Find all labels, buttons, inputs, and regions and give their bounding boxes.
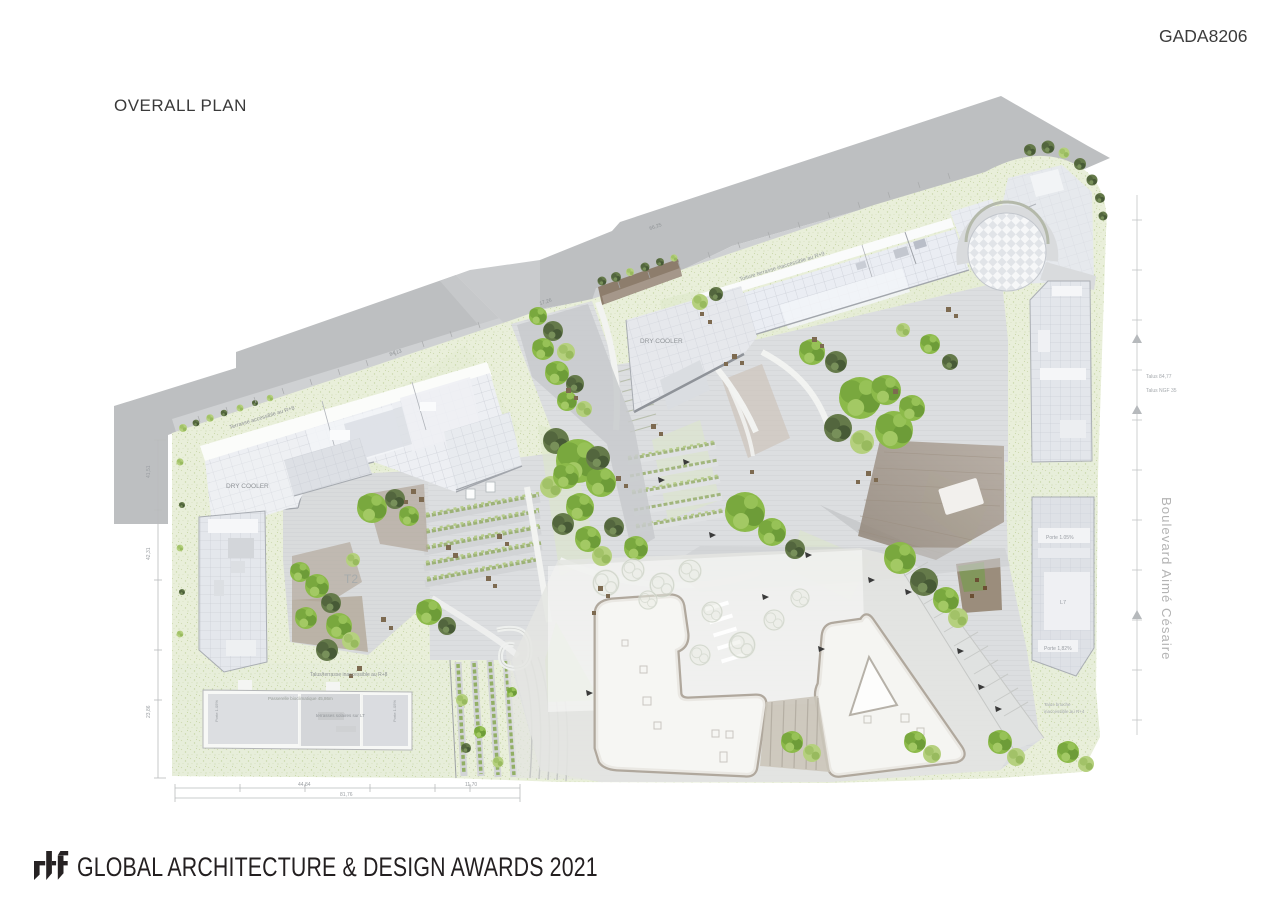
svg-text:T2: T2: [344, 572, 358, 586]
svg-text:81,76: 81,76: [340, 792, 353, 798]
svg-text:Talus NGF 35: Talus NGF 35: [1146, 388, 1177, 394]
svg-text:Porte 1,82%: Porte 1,82%: [1044, 646, 1072, 652]
svg-text:Porte 1.05%: Porte 1.05%: [392, 700, 397, 722]
svg-text:Talus 84,77: Talus 84,77: [1146, 374, 1172, 380]
svg-text:DRY COOLER: DRY COOLER: [640, 338, 683, 345]
svg-text:Talus brioche: Talus brioche: [1044, 702, 1071, 707]
svg-text:Passerelle bioclimatique 45,86: Passerelle bioclimatique 45,86m: [268, 696, 333, 701]
svg-text:42,31: 42,31: [146, 547, 152, 560]
svg-text:DRY COOLER: DRY COOLER: [226, 483, 269, 490]
svg-text:Porte 1.05%: Porte 1.05%: [1046, 535, 1074, 541]
svg-text:L7: L7: [1060, 600, 1066, 606]
svg-text:44,84: 44,84: [298, 782, 311, 788]
svg-text:Talus/terrasse inaccessible au: Talus/terrasse inaccessible au R+8: [310, 672, 388, 678]
svg-text:23,86: 23,86: [146, 705, 152, 718]
svg-text:Porte 1.05%: Porte 1.05%: [214, 700, 219, 722]
svg-text:41,51: 41,51: [146, 465, 152, 478]
svg-text:inaccessible au R+4: inaccessible au R+4: [1044, 709, 1085, 714]
svg-text:terrasses solaires sur LT: terrasses solaires sur LT: [316, 713, 365, 718]
svg-text:11,70: 11,70: [465, 782, 477, 788]
